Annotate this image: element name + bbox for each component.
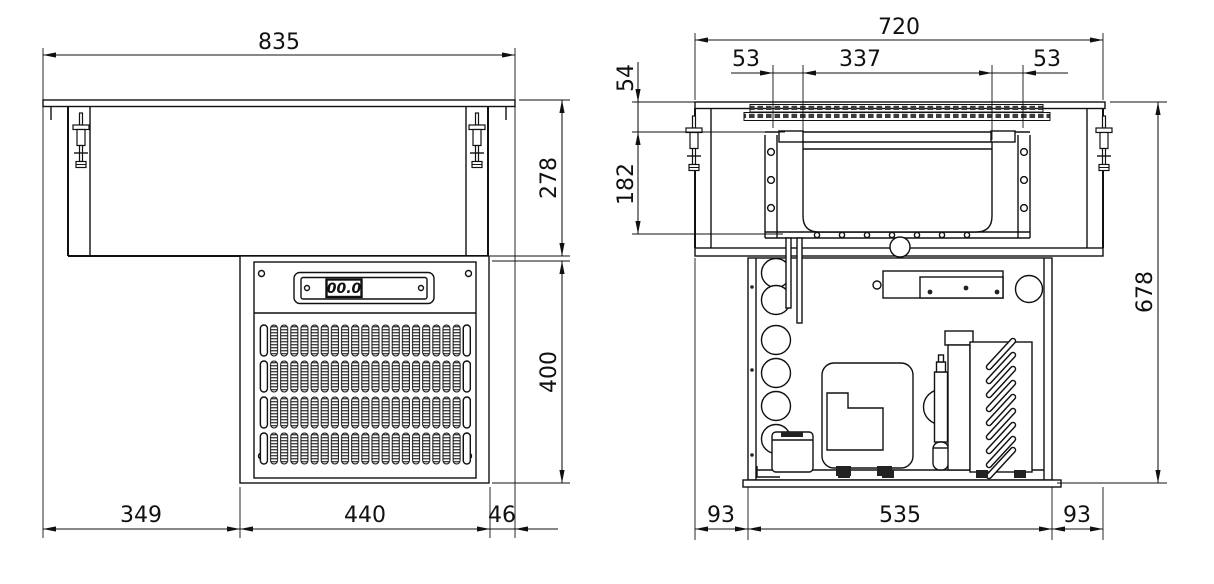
- refrigerated-well: [765, 131, 1030, 257]
- dim-835-label: 835: [258, 30, 300, 55]
- dim-182-label: 182: [614, 163, 639, 205]
- countertop-front: [43, 100, 515, 120]
- dim-54-label: 54: [614, 64, 639, 92]
- screw-icon: [768, 149, 775, 156]
- dim-53-right-label: 53: [1033, 47, 1061, 72]
- rim-vent-band: [744, 105, 1050, 121]
- screw-icon: [1021, 149, 1028, 156]
- dim-535-label: 535: [879, 503, 921, 528]
- basin-housing-front: [68, 107, 488, 257]
- drawing-canvas: 00.0 835 278: [0, 0, 1214, 584]
- dim-46-label: 46: [488, 503, 516, 528]
- screw-icon: [1021, 177, 1028, 184]
- temperature-display: 00.0: [294, 273, 434, 304]
- dim-720-label: 720: [878, 15, 920, 40]
- side-view: 720 53 337 53: [614, 15, 1167, 540]
- dim-337-label: 337: [839, 47, 881, 72]
- dim-engine-height-400: 400: [492, 261, 570, 483]
- mounting-clamp-right-icon: [1096, 116, 1112, 171]
- dim-rim-54-and-well-182: 54 182: [614, 62, 785, 234]
- dim-pan-chain: 53 337 53: [731, 47, 1068, 140]
- dim-678-label: 678: [1133, 271, 1158, 313]
- dim-overall-height-678: 678: [1057, 102, 1167, 483]
- food-pan: [803, 142, 992, 232]
- mounting-clamp-left-icon: [686, 116, 702, 171]
- dim-93-left-label: 93: [707, 503, 735, 528]
- dim-depth-278: 278: [490, 100, 570, 256]
- dim-400-label: 400: [537, 351, 562, 393]
- dim-53-left-label: 53: [732, 47, 760, 72]
- junction-box: [772, 432, 813, 472]
- ventilation-grille: [259, 323, 472, 467]
- front-view: 00.0 835 278: [43, 30, 570, 538]
- dim-93-right-label: 93: [1063, 503, 1091, 528]
- technical-drawing-page: 00.0 835 278: [0, 0, 1214, 584]
- screw-icon: [1021, 205, 1028, 212]
- dim-bottom-chain-front: 349 440 46: [43, 487, 558, 538]
- screw-icon: [768, 177, 775, 184]
- dim-278-label: 278: [537, 157, 562, 199]
- drain-outlet: [890, 237, 910, 257]
- display-value: 00.0: [327, 281, 362, 297]
- compressor: [822, 363, 913, 476]
- screw-icon: [768, 205, 775, 212]
- condenser: [970, 341, 1032, 476]
- mounting-clamp-left-icon: [73, 113, 89, 168]
- mounting-clamp-right-icon: [469, 113, 485, 168]
- dim-349-label: 349: [120, 503, 162, 528]
- fan-shroud: [945, 331, 973, 470]
- machinery-compartment: [743, 238, 1061, 487]
- dim-440-label: 440: [344, 503, 386, 528]
- filter-drier: [933, 442, 949, 470]
